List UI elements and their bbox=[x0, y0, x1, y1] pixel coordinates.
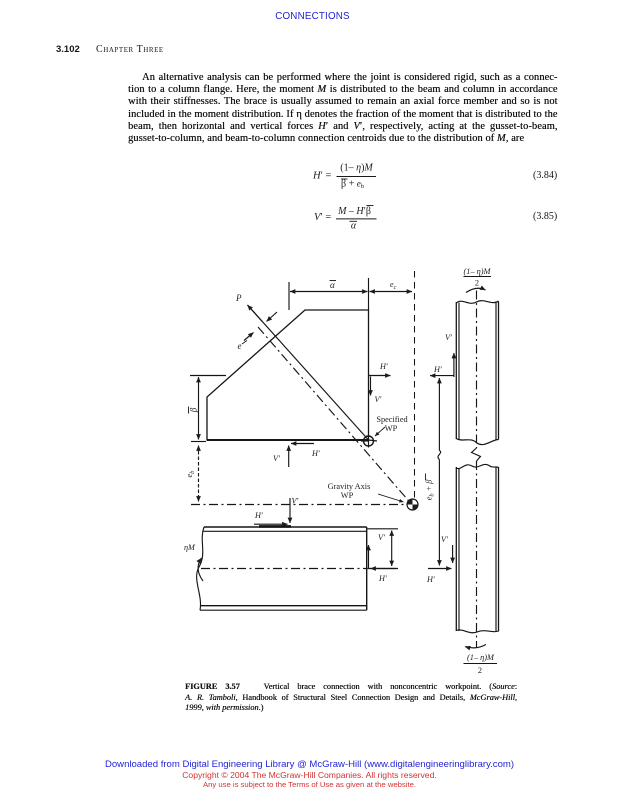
svg-text:eb: eb bbox=[185, 470, 196, 478]
svg-text:e: e bbox=[238, 341, 242, 351]
svg-text:(1– η)M: (1– η)M bbox=[340, 163, 373, 174]
svg-text:V′: V′ bbox=[441, 535, 448, 544]
svg-text:H′: H′ bbox=[426, 575, 435, 584]
svg-text:V′: V′ bbox=[378, 533, 385, 542]
svg-text:α: α bbox=[351, 221, 357, 232]
svg-text:V′: V′ bbox=[273, 454, 280, 463]
svg-text:M – H′β: M – H′β bbox=[337, 206, 371, 217]
svg-text:V′: V′ bbox=[445, 333, 452, 342]
svg-text:Specified: Specified bbox=[376, 415, 408, 424]
svg-text:H′ =: H′ = bbox=[312, 171, 332, 182]
svg-text:2: 2 bbox=[475, 279, 479, 288]
svg-text:WP: WP bbox=[385, 424, 398, 433]
svg-text:(1– η)M: (1– η)M bbox=[464, 267, 492, 276]
svg-text:V′ =: V′ = bbox=[314, 212, 331, 223]
svg-text:WP: WP bbox=[341, 491, 354, 500]
svg-text:H′: H′ bbox=[378, 574, 387, 583]
svg-text:P: P bbox=[235, 293, 242, 303]
svg-text:Gravity Axis: Gravity Axis bbox=[328, 482, 371, 491]
svg-text:β + eb: β + eb bbox=[341, 179, 364, 191]
svg-text:(1– η)M: (1– η)M bbox=[467, 653, 495, 662]
svg-text:H′: H′ bbox=[311, 449, 320, 458]
svg-text:H′: H′ bbox=[433, 365, 442, 374]
svg-text:H′: H′ bbox=[254, 511, 263, 520]
svg-text:H′: H′ bbox=[379, 362, 388, 371]
svg-text:ηM: ηM bbox=[184, 543, 196, 552]
svg-text:V′: V′ bbox=[292, 497, 299, 506]
svg-text:α: α bbox=[330, 280, 335, 290]
svg-text:β: β bbox=[189, 407, 199, 413]
svg-text:ec: ec bbox=[390, 280, 397, 291]
svg-text:eb + β: eb + β bbox=[425, 479, 436, 501]
svg-text:2: 2 bbox=[478, 666, 482, 675]
svg-text:V′: V′ bbox=[375, 395, 382, 404]
